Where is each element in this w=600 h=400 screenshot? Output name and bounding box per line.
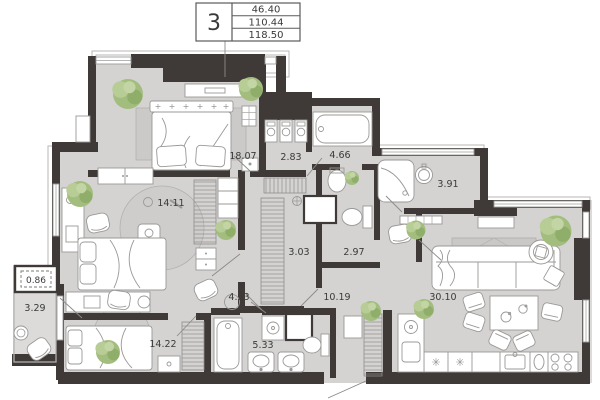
bathtub-icon <box>214 318 242 372</box>
washing-machine-icon <box>262 316 284 340</box>
bathtub-icon <box>313 112 372 146</box>
dresser-icon <box>185 84 245 97</box>
balcony-door-window <box>57 296 63 340</box>
closet-shelf-icon <box>264 178 306 193</box>
pillow-icon <box>80 264 96 284</box>
room-label-storage: 2.83 <box>280 152 301 163</box>
nightstand-icon <box>158 356 180 372</box>
room-label-bathroom-2: 5.33 <box>252 340 273 351</box>
shaft-block <box>259 92 312 120</box>
floor-plan: 0.86 <box>0 0 600 400</box>
entrance-door-swing <box>328 381 366 398</box>
storage-lockers <box>265 120 307 142</box>
room-label-bedroom-1: 18.07 <box>229 151 256 162</box>
room-label-living-kitchen: 30.10 <box>429 292 456 303</box>
corridor-closet-icon <box>364 314 382 376</box>
pillow-icon <box>195 145 225 167</box>
window <box>96 57 131 64</box>
column-icon <box>76 116 90 142</box>
room-label-corridor: 10.19 <box>323 292 350 303</box>
headboard-icon <box>150 101 233 112</box>
closet-shelf-icon <box>261 198 284 304</box>
toilet-tank-icon <box>321 334 329 356</box>
window <box>382 149 474 155</box>
balcony-coefficient-box: 0.86 <box>15 266 57 292</box>
room-label-closet: 3.03 <box>288 247 309 258</box>
tv-console-icon <box>478 217 514 228</box>
bathroom1-furniture <box>313 112 372 146</box>
room-label-balcony: 3.29 <box>24 303 45 314</box>
room-label-bedroom-2: 14.11 <box>157 198 184 209</box>
window <box>583 300 589 342</box>
living-area-value: 46.40 <box>252 5 281 16</box>
pillow-icon <box>80 242 96 262</box>
fridge-icon <box>432 358 440 366</box>
bedroom2-wardrobe-icon <box>194 180 216 244</box>
window <box>494 201 582 207</box>
dryer-icon <box>286 314 312 340</box>
room-label-balcony-reduced: 0.86 <box>26 276 46 286</box>
window <box>53 184 59 236</box>
toilet-icon <box>303 337 321 353</box>
fridge-icon <box>456 358 464 366</box>
pillow-icon <box>156 145 186 167</box>
window <box>265 57 276 64</box>
washing-machine-icon <box>304 196 336 223</box>
floor-plan-page: 0.86 <box>0 0 600 400</box>
shoe-cabinet-icon <box>344 316 362 338</box>
desk-chair <box>107 290 131 311</box>
total-area-value: 118.50 <box>249 30 284 41</box>
pillow-icon <box>68 348 82 364</box>
room-label-wc: 2.97 <box>343 247 364 258</box>
window <box>583 212 589 238</box>
shelf-icon <box>218 178 238 218</box>
kitchen-column-icon <box>398 314 424 372</box>
toilet-tank-icon <box>363 206 372 228</box>
room-label-shower-room: 3.91 <box>437 179 458 190</box>
pillow-icon <box>68 330 82 346</box>
balcony-table <box>14 326 28 340</box>
dining-table-icon <box>490 296 538 330</box>
tv-icon <box>480 211 514 216</box>
bedroom3-wardrobe-icon <box>182 322 204 370</box>
room-label-bedroom-3: 14.22 <box>149 339 176 350</box>
wardrobe-doors-icon <box>98 168 153 184</box>
room-label-hall: 4.93 <box>228 292 249 303</box>
room-label-bathroom-1: 4.66 <box>329 150 350 161</box>
toilet-icon <box>342 209 362 226</box>
unit-number: 3 <box>207 11 221 36</box>
apartment-area-value: 110.44 <box>249 18 284 29</box>
